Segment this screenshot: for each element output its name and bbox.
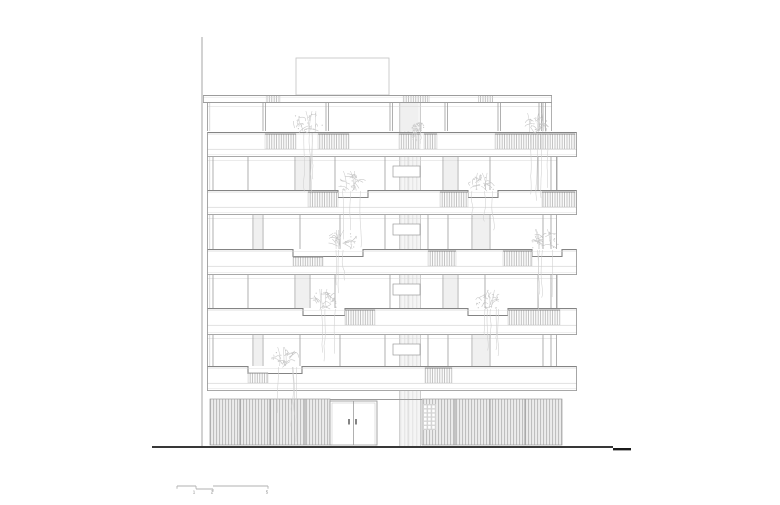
railing-hatch — [308, 192, 338, 207]
railing-hatch — [503, 251, 532, 266]
core-box — [393, 166, 420, 177]
railing-hatch — [318, 134, 349, 149]
balcony-band-3 — [207, 249, 577, 275]
balcony-band-5 — [207, 366, 577, 391]
railing-hatch — [508, 310, 560, 325]
door-handle — [348, 419, 350, 425]
louver-screen-right — [422, 399, 562, 445]
railing-hatch — [345, 310, 375, 325]
railing-hatch — [248, 373, 268, 383]
balcony-band-2 — [207, 190, 577, 215]
window-shade-strip — [254, 335, 262, 366]
core-box — [393, 224, 420, 235]
elevation-figure: 125 — [0, 0, 780, 505]
balcony-band-1 — [207, 132, 577, 157]
window-shade-strip — [473, 335, 489, 366]
railing-hatch — [293, 257, 323, 266]
window-shade-strip — [444, 275, 457, 308]
railing-hatch — [399, 134, 420, 149]
railing-hatch — [425, 368, 452, 383]
entrance-door — [330, 401, 377, 445]
railing-hatch — [542, 192, 575, 207]
roof-railing-hatch — [402, 96, 430, 102]
railing-hatch — [424, 134, 437, 149]
core-box — [393, 344, 420, 355]
railing-hatch — [495, 134, 575, 149]
balcony-band-4 — [207, 308, 577, 335]
building-elevation-drawing: 125 — [0, 0, 780, 505]
roof-railing-hatch — [265, 96, 281, 102]
window-shade-strip — [444, 157, 457, 190]
core-box — [393, 284, 420, 295]
roof-band — [203, 95, 552, 103]
perforated-panel — [423, 404, 436, 430]
rooftop-volume — [296, 58, 389, 95]
door-handle — [355, 419, 357, 425]
window-shade-strip — [296, 157, 309, 190]
drawing-page: 125 — [0, 0, 780, 505]
louver-screen-left — [210, 399, 330, 445]
railing-hatch — [265, 134, 296, 149]
window-shade-strip — [254, 215, 262, 249]
railing-hatch — [440, 192, 468, 207]
window-shade-strip — [296, 275, 309, 308]
roof-railing-hatch — [478, 96, 493, 102]
railing-hatch — [428, 251, 456, 266]
window-shade-strip — [473, 215, 489, 249]
